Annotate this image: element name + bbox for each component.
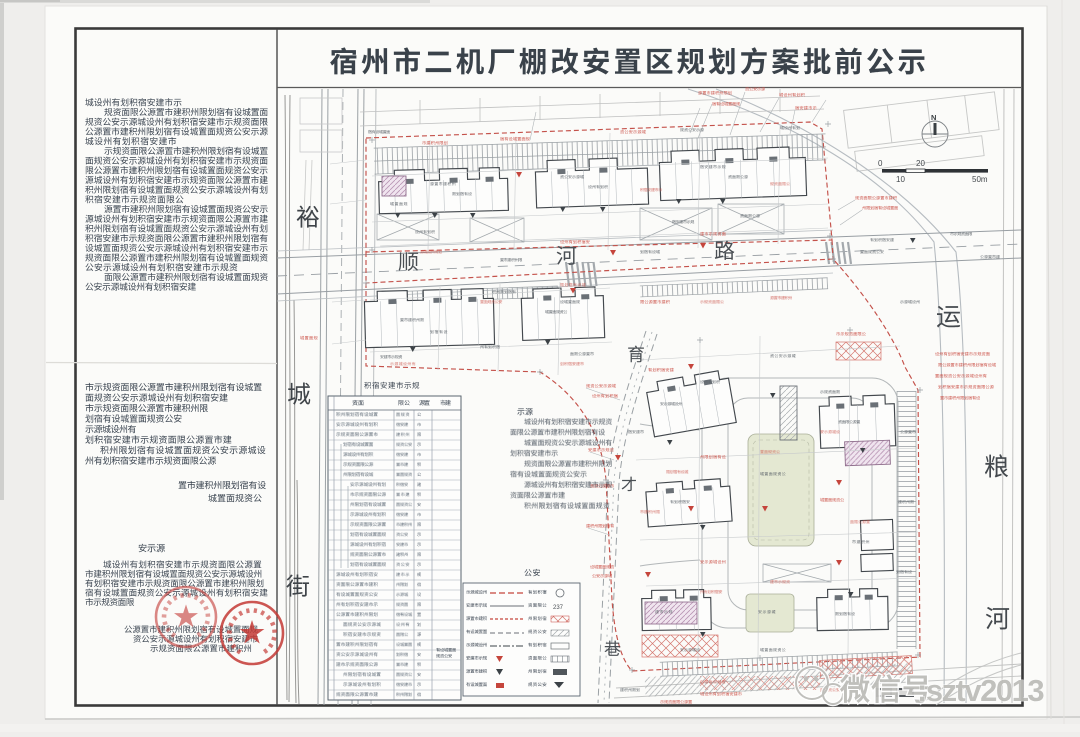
svg-text:N: N (931, 113, 936, 122)
svg-text::sztv2013: :sztv2013 (917, 673, 1044, 708)
svg-text:0: 0 (878, 159, 883, 168)
svg-text:50m: 50m (972, 175, 988, 184)
svg-text:10: 10 (896, 175, 905, 184)
svg-text:237: 237 (553, 605, 564, 611)
svg-text:20: 20 (916, 159, 925, 168)
